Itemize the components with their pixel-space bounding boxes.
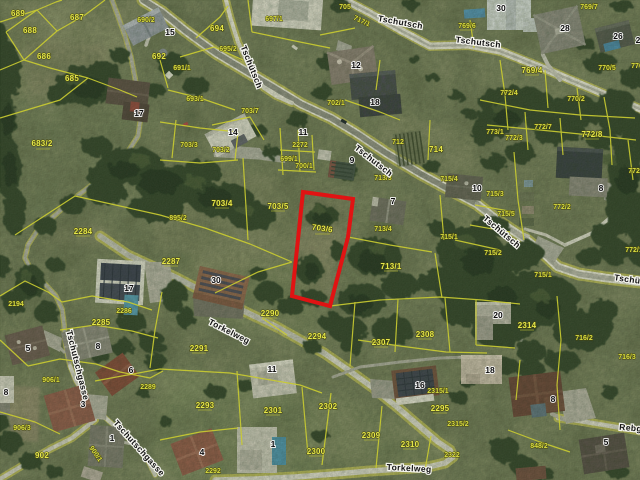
svg-text:8: 8 (4, 387, 9, 397)
svg-text:715/3: 715/3 (486, 191, 504, 198)
svg-text:772/7: 772/7 (534, 124, 552, 131)
svg-text:770/2: 770/2 (567, 96, 585, 103)
svg-text:2285: 2285 (92, 318, 111, 327)
svg-text:2194: 2194 (8, 301, 24, 308)
svg-text:906/1: 906/1 (42, 377, 60, 384)
svg-text:702/1: 702/1 (327, 100, 345, 107)
svg-text:2307: 2307 (372, 338, 391, 347)
svg-text:693/1: 693/1 (186, 96, 204, 103)
svg-text:2272: 2272 (292, 142, 308, 149)
svg-text:2310: 2310 (401, 440, 420, 449)
svg-text:772/4: 772/4 (500, 90, 518, 97)
svg-text:713/4: 713/4 (374, 226, 392, 233)
svg-text:689: 689 (11, 9, 25, 18)
svg-text:5: 5 (604, 437, 609, 447)
svg-text:18: 18 (370, 97, 380, 107)
svg-text:6: 6 (129, 365, 134, 375)
svg-text:2314: 2314 (518, 321, 537, 330)
svg-text:715/5: 715/5 (497, 211, 515, 218)
svg-text:8: 8 (96, 341, 101, 351)
svg-text:848/2: 848/2 (530, 443, 548, 450)
svg-text:683/2: 683/2 (31, 139, 52, 148)
svg-text:902: 902 (35, 451, 49, 460)
svg-text:772/8: 772/8 (581, 130, 602, 139)
svg-text:2: 2 (636, 35, 640, 45)
svg-text:692: 692 (152, 52, 166, 61)
svg-text:20: 20 (493, 310, 503, 320)
svg-text:688: 688 (23, 26, 37, 35)
svg-text:28: 28 (560, 23, 570, 33)
svg-text:769/4: 769/4 (521, 66, 542, 75)
svg-text:705: 705 (339, 4, 351, 11)
svg-text:895/2: 895/2 (169, 215, 187, 222)
svg-text:691/1: 691/1 (173, 65, 191, 72)
svg-text:715/1: 715/1 (440, 234, 458, 241)
svg-text:714: 714 (429, 145, 443, 154)
svg-text:773/1: 773/1 (486, 129, 504, 136)
svg-text:769/7: 769/7 (580, 4, 598, 11)
svg-text:1: 1 (110, 433, 115, 443)
svg-text:30: 30 (211, 275, 221, 285)
svg-text:770/5: 770/5 (598, 65, 616, 72)
svg-text:772/2: 772/2 (553, 204, 571, 211)
svg-text:770: 770 (631, 63, 640, 70)
svg-text:769/6: 769/6 (458, 23, 476, 30)
svg-text:906/3: 906/3 (13, 425, 31, 432)
svg-text:715/1: 715/1 (534, 272, 552, 279)
svg-text:772/6: 772/6 (628, 168, 640, 175)
svg-text:772/3: 772/3 (505, 135, 523, 142)
svg-text:697/1: 697/1 (265, 16, 283, 23)
svg-text:18: 18 (485, 365, 495, 375)
svg-text:687: 687 (70, 13, 84, 22)
svg-text:16: 16 (415, 380, 425, 390)
svg-text:2287: 2287 (162, 257, 181, 266)
svg-text:26: 26 (613, 31, 623, 41)
svg-text:17: 17 (134, 108, 144, 118)
svg-text:15: 15 (165, 27, 175, 37)
svg-text:2295: 2295 (431, 404, 450, 413)
svg-text:685: 685 (65, 74, 79, 83)
svg-text:2322: 2322 (444, 452, 460, 459)
svg-text:694: 694 (210, 24, 224, 33)
svg-text:700/1: 700/1 (295, 163, 313, 170)
svg-text:2290: 2290 (261, 309, 280, 318)
svg-text:703/5: 703/5 (267, 202, 288, 211)
svg-text:690/2: 690/2 (137, 17, 155, 24)
svg-text:686: 686 (37, 52, 51, 61)
svg-text:10: 10 (472, 183, 482, 193)
svg-text:2309: 2309 (362, 431, 381, 440)
svg-text:2289: 2289 (140, 384, 156, 391)
svg-text:2302: 2302 (319, 402, 338, 411)
svg-text:703/2: 703/2 (212, 147, 230, 154)
svg-text:715/2: 715/2 (484, 250, 502, 257)
svg-text:2315/2: 2315/2 (447, 421, 469, 428)
svg-text:2294: 2294 (308, 332, 327, 341)
svg-text:2286: 2286 (116, 308, 132, 315)
svg-text:703/7: 703/7 (241, 108, 259, 115)
svg-text:17: 17 (124, 283, 134, 293)
svg-text:2308: 2308 (416, 330, 435, 339)
svg-text:712: 712 (392, 139, 404, 146)
svg-text:699/1: 699/1 (280, 156, 298, 163)
svg-text:9: 9 (350, 155, 355, 165)
svg-text:12: 12 (351, 60, 361, 70)
svg-text:2284: 2284 (74, 227, 93, 236)
svg-text:2293: 2293 (196, 401, 215, 410)
svg-text:716/3: 716/3 (618, 354, 636, 361)
svg-text:2300: 2300 (307, 447, 326, 456)
svg-text:5: 5 (26, 343, 31, 353)
svg-text:7: 7 (391, 196, 396, 206)
svg-text:1: 1 (271, 439, 276, 449)
svg-text:715/4: 715/4 (440, 176, 458, 183)
svg-text:703/4: 703/4 (211, 199, 232, 208)
svg-text:713/1: 713/1 (380, 262, 401, 271)
svg-text:8: 8 (599, 183, 604, 193)
svg-text:30: 30 (496, 3, 506, 13)
svg-text:11: 11 (268, 364, 277, 374)
svg-text:2315/1: 2315/1 (427, 388, 449, 395)
svg-text:2301: 2301 (264, 406, 283, 415)
svg-text:2291: 2291 (190, 344, 209, 353)
svg-text:4: 4 (200, 447, 205, 457)
svg-text:772/1: 772/1 (625, 247, 640, 254)
svg-text:11: 11 (299, 127, 308, 137)
svg-text:716/2: 716/2 (575, 335, 593, 342)
svg-text:695/2: 695/2 (219, 46, 237, 53)
svg-text:2292: 2292 (205, 468, 221, 475)
svg-text:8: 8 (551, 394, 556, 404)
svg-text:703/3: 703/3 (180, 142, 198, 149)
svg-text:14: 14 (228, 127, 238, 137)
